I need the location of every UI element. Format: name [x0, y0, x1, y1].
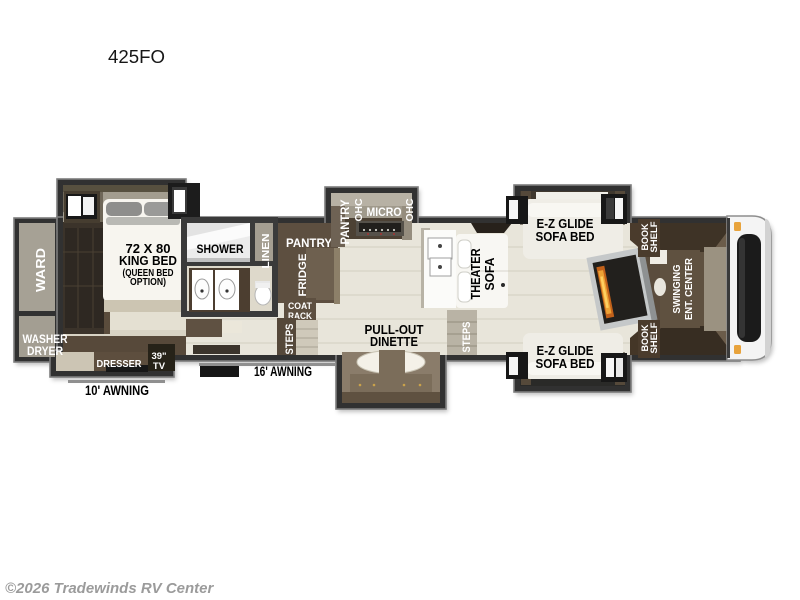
svg-text:STEPS: STEPS	[461, 322, 473, 353]
svg-text:WASHER: WASHER	[23, 334, 69, 346]
svg-text:OHC: OHC	[353, 198, 365, 221]
svg-text:DRYER: DRYER	[27, 346, 64, 358]
svg-text:WARD: WARD	[33, 248, 48, 292]
svg-text:16' AWNING: 16' AWNING	[254, 364, 312, 379]
svg-text:DRESSER: DRESSER	[97, 358, 142, 370]
svg-text:TV: TV	[153, 361, 166, 372]
svg-text:SOFA BED: SOFA BED	[536, 356, 595, 371]
svg-text:10' AWNING: 10' AWNING	[85, 383, 149, 398]
svg-text:FRIDGE: FRIDGE	[297, 254, 309, 297]
svg-text:THEATER: THEATER	[468, 248, 483, 300]
svg-text:STEPS: STEPS	[284, 324, 296, 355]
svg-text:OHC: OHC	[404, 198, 416, 221]
svg-text:SWINGING: SWINGING	[672, 264, 683, 313]
svg-text:SOFA BED: SOFA BED	[536, 229, 595, 244]
svg-text:SHELF: SHELF	[649, 221, 660, 252]
svg-text:KING BED: KING BED	[119, 253, 177, 268]
svg-text:SOFA: SOFA	[482, 257, 497, 291]
svg-text:DINETTE: DINETTE	[370, 334, 418, 349]
svg-text:MICRO: MICRO	[367, 205, 402, 219]
svg-text:425FO: 425FO	[108, 47, 165, 67]
svg-text:©2026 Tradewinds RV Center: ©2026 Tradewinds RV Center	[5, 580, 215, 597]
svg-text:LINEN: LINEN	[261, 234, 272, 269]
svg-text:PANTRY: PANTRY	[340, 199, 352, 244]
svg-text:SHELF: SHELF	[649, 322, 660, 353]
svg-text:OPTION): OPTION)	[130, 277, 166, 288]
svg-text:PANTRY: PANTRY	[286, 236, 332, 250]
svg-text:ENT. CENTER: ENT. CENTER	[684, 257, 695, 320]
svg-text:SHOWER: SHOWER	[197, 242, 244, 256]
